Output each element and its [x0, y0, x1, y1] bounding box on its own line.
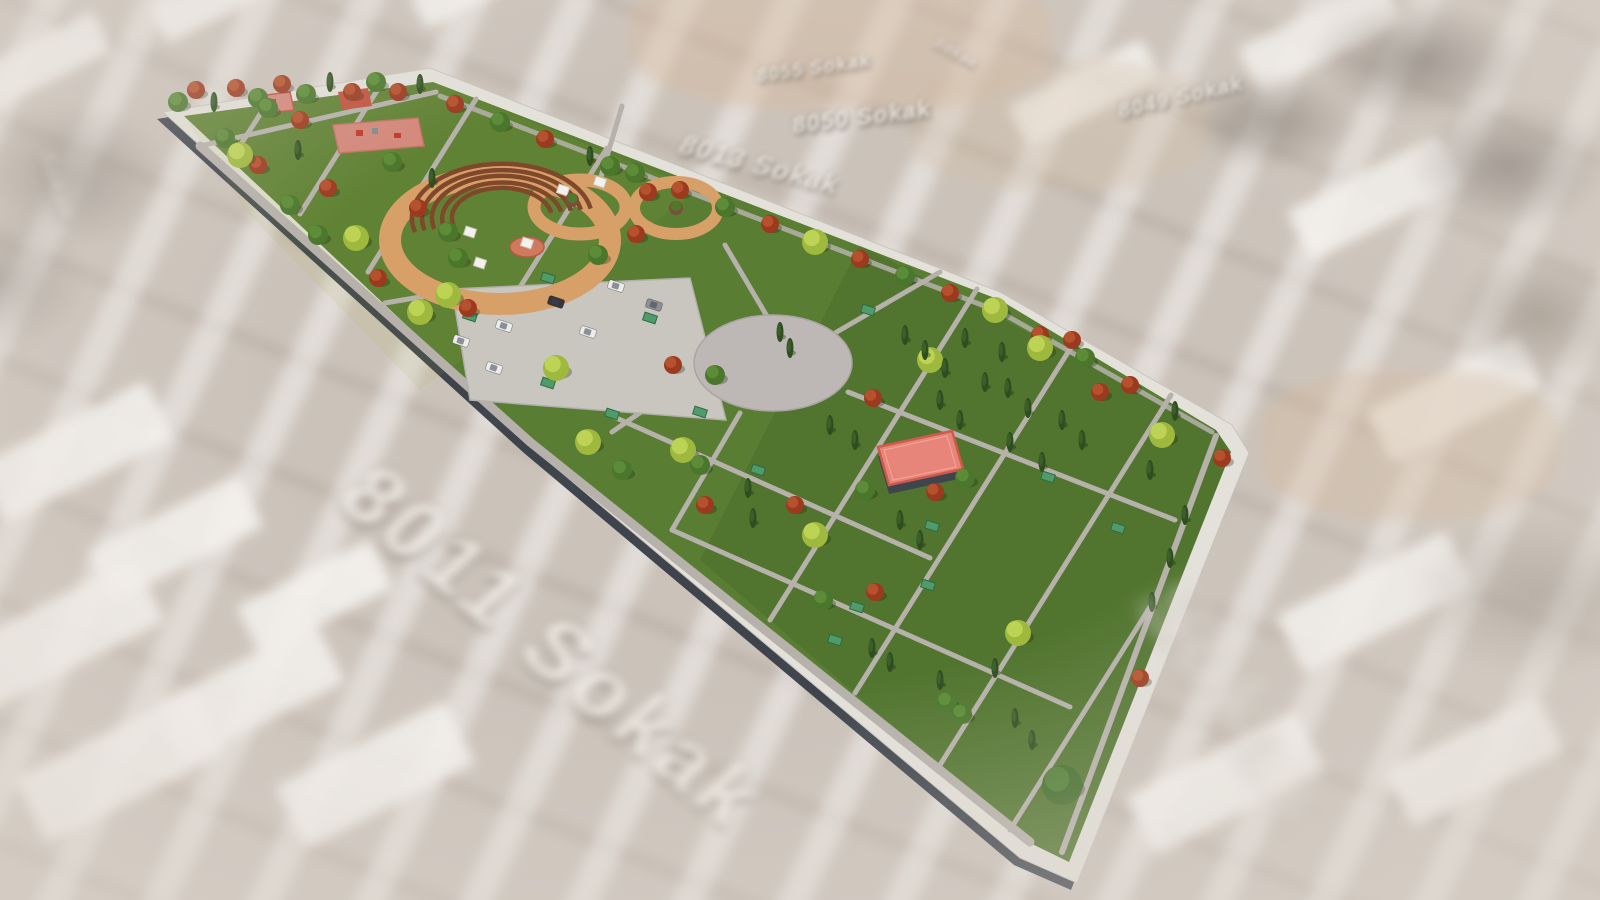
circular-plaza	[694, 315, 852, 411]
map-3d-viewport[interactable]: 8011 SokakSokak8013 Sokak8050 Sokak8055 …	[0, 0, 1600, 900]
park-render	[0, 0, 1600, 900]
